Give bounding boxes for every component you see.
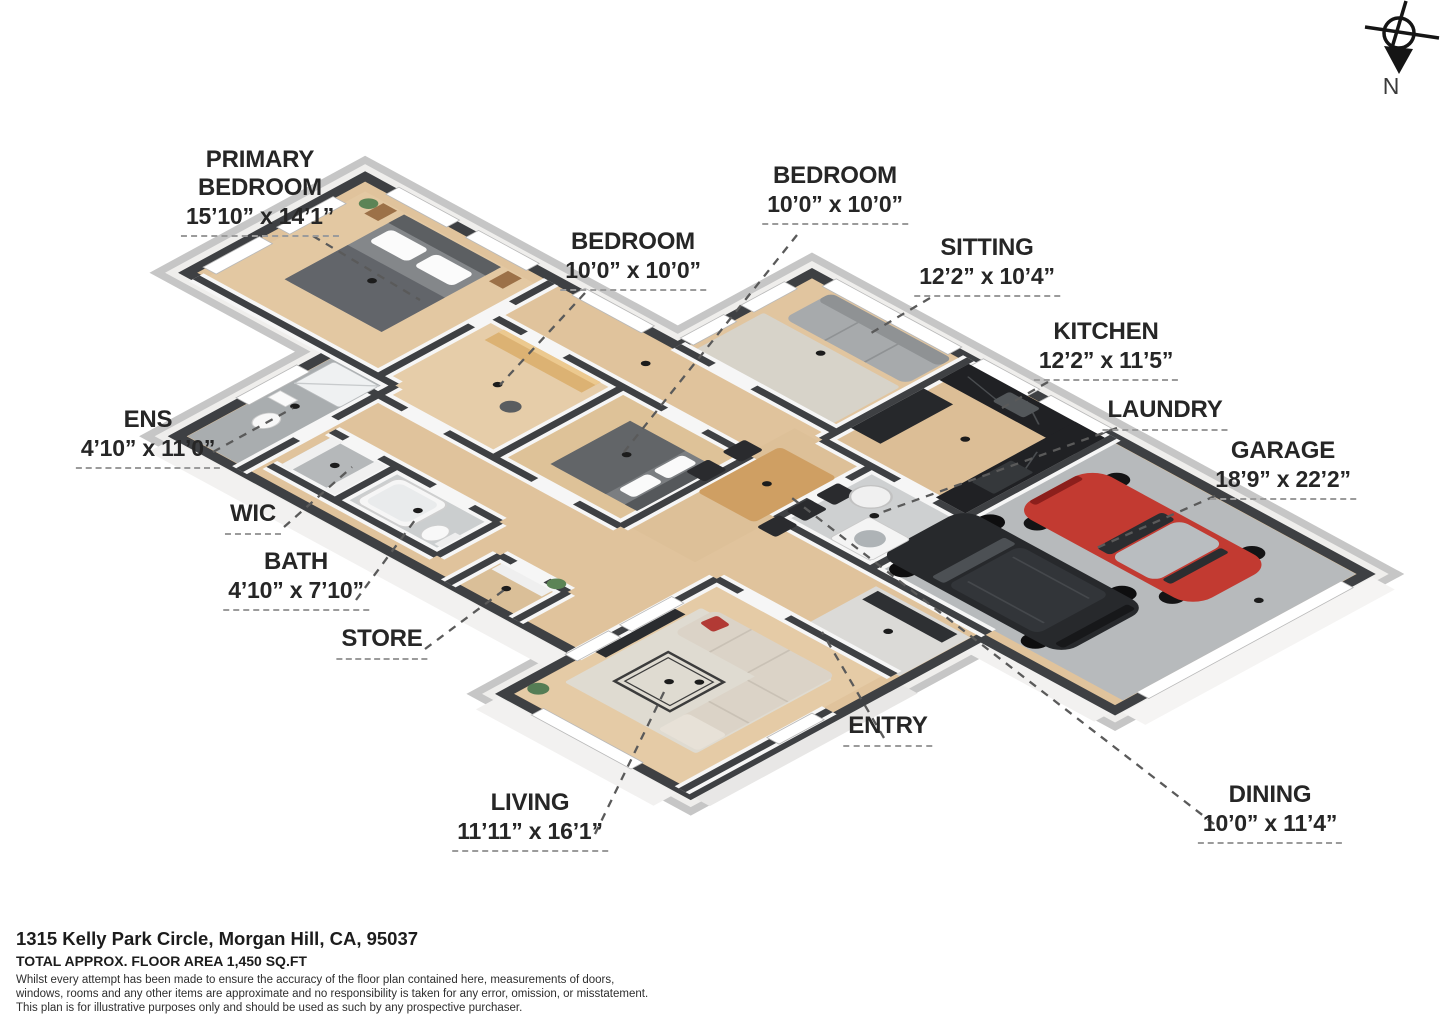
room-name: BATH xyxy=(228,548,364,576)
room-dimensions: 18’9” x 22’2” xyxy=(1215,465,1351,493)
room-name: SITTING xyxy=(919,234,1055,262)
leader-sitting xyxy=(866,298,930,336)
leader-kitchen xyxy=(1002,382,1048,408)
total-floor-area: TOTAL APPROX. FLOOR AREA 1,450 SQ.FT xyxy=(16,953,648,969)
room-label-garage: GARAGE18’9” x 22’2” xyxy=(1210,437,1356,500)
leader-primary-bedroom xyxy=(313,236,420,300)
room-name: BEDROOM xyxy=(186,174,334,202)
room-dimensions: 12’2” x 10’4” xyxy=(919,262,1055,290)
disclaimer-line: Whilst every attempt has been made to en… xyxy=(16,973,648,987)
room-label-primary-bedroom: PRIMARYBEDROOM15’10” x 14’1” xyxy=(181,146,339,237)
footer: 1315 Kelly Park Circle, Morgan Hill, CA,… xyxy=(16,928,648,1015)
room-name: BEDROOM xyxy=(767,162,903,190)
leader-garage xyxy=(1092,496,1215,550)
room-dimensions: 10’0” x 11’4” xyxy=(1203,809,1337,837)
room-name: LAUNDRY xyxy=(1107,396,1222,424)
disclaimer-text: Whilst every attempt has been made to en… xyxy=(16,973,648,1015)
room-dimensions: 10’0” x 10’0” xyxy=(565,256,701,284)
room-label-bedroom-right: BEDROOM10’0” x 10’0” xyxy=(762,162,908,225)
room-dimensions: 12’2” x 11’5” xyxy=(1039,346,1173,374)
compass-north-label: N xyxy=(1383,73,1400,99)
room-name: KITCHEN xyxy=(1039,318,1173,346)
room-label-laundry: LAUNDRY xyxy=(1102,396,1227,431)
room-dimensions: 15’10” x 14’1” xyxy=(186,202,334,230)
room-label-store: STORE xyxy=(336,625,427,660)
room-label-living: LIVING11’11” x 16’1” xyxy=(452,789,608,852)
room-name: LIVING xyxy=(457,789,603,817)
disclaimer-line: windows, rooms and any other items are a… xyxy=(16,987,648,1001)
room-label-ens: ENS4’10” x 11’0” xyxy=(76,406,220,469)
leader-wic xyxy=(284,467,352,527)
compass-icon: N xyxy=(1365,1,1439,99)
room-name: GARAGE xyxy=(1215,437,1351,465)
leader-ens xyxy=(213,408,293,452)
room-name: DINING xyxy=(1203,781,1337,809)
room-label-kitchen: KITCHEN12’2” x 11’5” xyxy=(1034,318,1178,381)
room-name: WIC xyxy=(230,500,276,528)
room-label-sitting: SITTING12’2” x 10’4” xyxy=(914,234,1060,297)
floor-plan-page: N PRIMARYBEDROOM15’10” x 14’1”BEDROOM10’… xyxy=(0,0,1440,1018)
room-dimensions: 4’10” x 7’10” xyxy=(228,576,364,604)
room-label-wic: WIC xyxy=(225,500,281,535)
room-name: STORE xyxy=(341,625,422,653)
room-dimensions: 10’0” x 10’0” xyxy=(767,190,903,218)
room-name: PRIMARY xyxy=(186,146,334,174)
leader-laundry xyxy=(877,428,1117,514)
room-name: ENS xyxy=(81,406,215,434)
leader-store xyxy=(425,590,504,649)
room-name: ENTRY xyxy=(848,712,927,740)
room-dimensions: 11’11” x 16’1” xyxy=(457,817,603,845)
room-name: BEDROOM xyxy=(565,228,701,256)
room-label-entry: ENTRY xyxy=(843,712,932,747)
leader-dining xyxy=(792,498,1214,824)
room-label-bedroom-left: BEDROOM10’0” x 10’0” xyxy=(560,228,706,291)
disclaimer-line: This plan is for illustrative purposes o… xyxy=(16,1001,648,1015)
room-label-bath: BATH4’10” x 7’10” xyxy=(223,548,369,611)
room-dimensions: 4’10” x 11’0” xyxy=(81,434,215,462)
leader-bedroom-left xyxy=(500,293,585,385)
room-label-dining: DINING10’0” x 11’4” xyxy=(1198,781,1342,844)
property-address: 1315 Kelly Park Circle, Morgan Hill, CA,… xyxy=(16,928,648,950)
